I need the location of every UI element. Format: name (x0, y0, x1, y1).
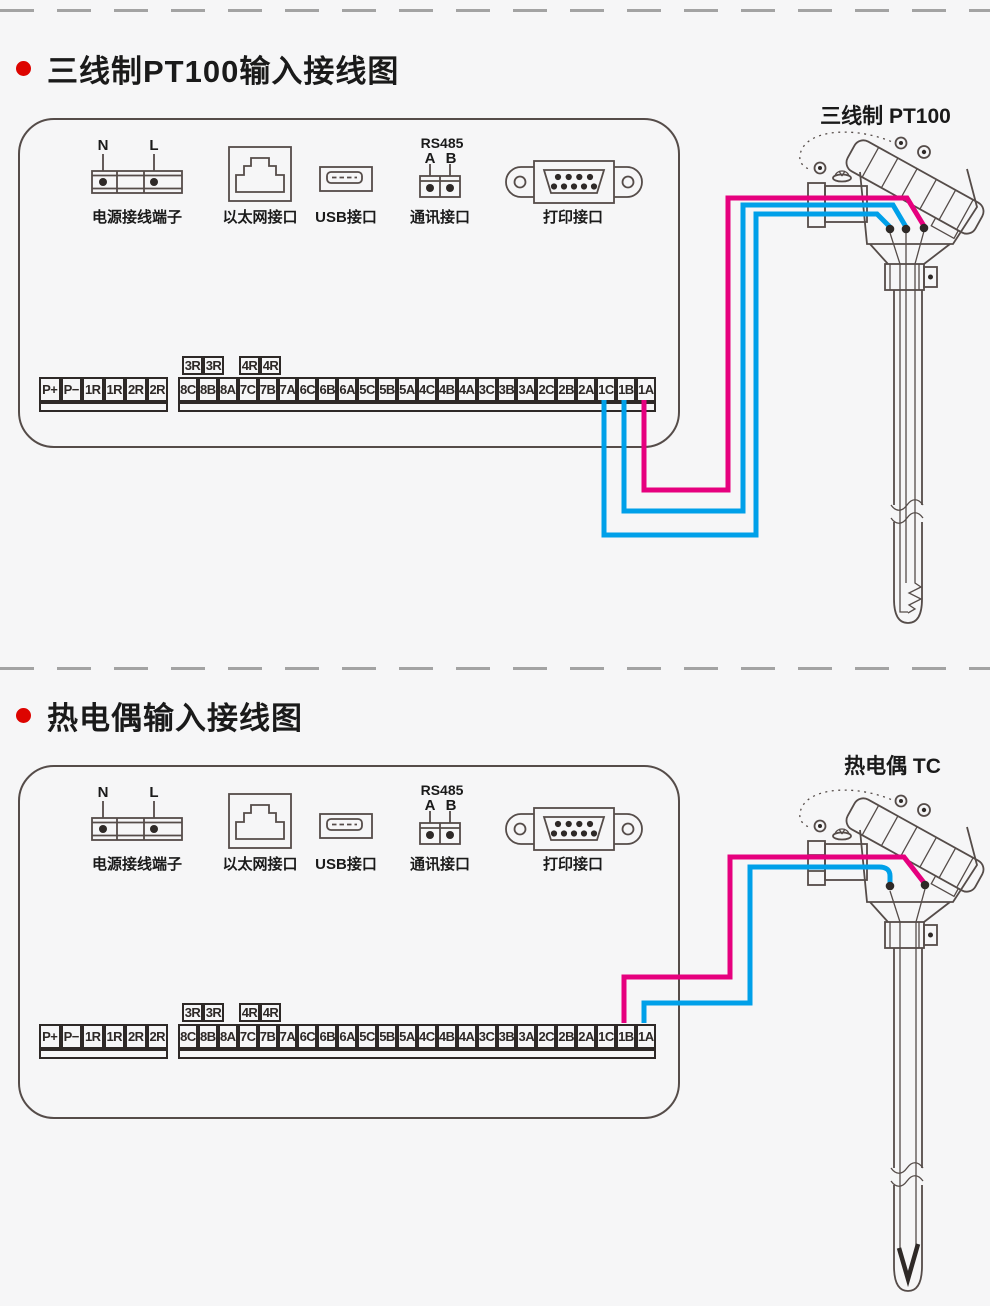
terminal-8c: 8C (178, 377, 198, 402)
terminal-1c: 1C (596, 1024, 616, 1049)
terminal-4r: 4R (239, 1003, 260, 1022)
terminal-1r: 1R (82, 377, 104, 402)
terminal-5a: 5A (397, 1024, 417, 1049)
terminal-5c: 5C (357, 377, 377, 402)
terminal-6a: 6A (337, 377, 357, 402)
terminal-8b: 8B (198, 1024, 218, 1049)
section2-title-row: 热电偶输入接线图 (16, 693, 303, 738)
terminal-1c: 1C (596, 377, 616, 402)
terminal-2b: 2B (556, 1024, 576, 1049)
terminal-strip-base (178, 1049, 656, 1059)
terminal-2c: 2C (536, 377, 556, 402)
terminal-6b: 6B (317, 377, 337, 402)
terminal-7c: 7C (238, 1024, 258, 1049)
terminal-strip-base (39, 1049, 168, 1059)
terminal-7a: 7A (278, 1024, 298, 1049)
red-bullet-icon (16, 708, 31, 723)
terminal-3r: 3R (203, 356, 224, 375)
printer-port-label: 打印接口 (513, 206, 633, 224)
terminal-2r: 2R (147, 1024, 169, 1049)
terminal-4r: 4R (260, 356, 281, 375)
terminal-6a: 6A (337, 1024, 357, 1049)
terminal-2r: 2R (147, 377, 169, 402)
comm-port-label: 通讯接口 (380, 206, 500, 224)
tc-sensor-illustration (800, 790, 987, 1291)
printer-port-icon (504, 807, 644, 851)
terminal-5c: 5C (357, 1024, 377, 1049)
terminal-3c: 3C (477, 377, 497, 402)
middle-dashed-divider (0, 667, 990, 670)
relay-terminal-group: 4R4R (239, 1003, 281, 1022)
terminal-1r: 1R (104, 377, 126, 402)
terminal-4a: 4A (457, 377, 477, 402)
printer-port-label: 打印接口 (513, 853, 633, 871)
terminal-strip-right: 8C8B8A7C7B7A6C6B6A5C5B5A4C4B4A3C3B3A2C2B… (178, 1024, 656, 1049)
terminal-4r: 4R (260, 1003, 281, 1022)
terminal-strip-left: P+P−1R1R2R2R (39, 1024, 168, 1049)
usb-port-icon (319, 813, 373, 839)
comm-port-icon (419, 164, 461, 198)
top-dashed-divider (0, 9, 990, 12)
recorder-rear-panel-tc: N L 电源接线端子 以太网接口 USB接口 RS485 A B 通讯接口 打印… (18, 765, 680, 1119)
wire-cyan-1a (644, 867, 890, 1023)
terminal-3a: 3A (516, 377, 536, 402)
power-terminal-icon (91, 154, 183, 194)
pin-label-l: L (144, 137, 164, 154)
terminal-1b: 1B (616, 1024, 636, 1049)
terminal-4c: 4C (417, 1024, 437, 1049)
terminal-3r: 3R (182, 1003, 203, 1022)
comm-port-label: 通讯接口 (380, 853, 500, 871)
terminal-1r: 1R (82, 1024, 104, 1049)
terminal-4a: 4A (457, 1024, 477, 1049)
terminal-p−: P− (61, 377, 83, 402)
terminal-3a: 3A (516, 1024, 536, 1049)
terminal-3b: 3B (497, 377, 517, 402)
pt100-sensor-label: 三线制 PT100 (793, 100, 978, 130)
terminal-5a: 5A (397, 377, 417, 402)
power-terminal-icon (91, 801, 183, 841)
relay-terminal-group: 3R3R (182, 356, 224, 375)
section1-title-row: 三线制PT100输入接线图 (16, 46, 399, 91)
terminal-2a: 2A (576, 377, 596, 402)
terminal-strip-right: 8C8B8A7C7B7A6C6B6A5C5B5A4C4B4A3C3B3A2C2B… (178, 377, 656, 402)
terminal-3c: 3C (477, 1024, 497, 1049)
terminal-3r: 3R (203, 1003, 224, 1022)
terminal-4b: 4B (437, 1024, 457, 1049)
terminal-p+: P+ (39, 377, 61, 402)
terminal-1a: 1A (636, 1024, 656, 1049)
tc-sensor-label: 热电偶 TC (800, 750, 985, 780)
power-terminal-label: 电源接线端子 (77, 206, 197, 224)
terminal-8c: 8C (178, 1024, 198, 1049)
pt100-sensor-illustration (800, 132, 987, 623)
terminal-p+: P+ (39, 1024, 61, 1049)
terminal-strip-base (178, 402, 656, 412)
relay-terminal-group: 3R3R (182, 1003, 224, 1022)
pin-label-n: N (93, 784, 113, 801)
terminal-7a: 7A (278, 377, 298, 402)
terminal-3b: 3B (497, 1024, 517, 1049)
terminal-2r: 2R (125, 1024, 147, 1049)
terminal-8b: 8B (198, 377, 218, 402)
terminal-5b: 5B (377, 377, 397, 402)
printer-port-icon (504, 160, 644, 204)
recorder-rear-panel-pt100: N L 电源接线端子 以太网接口 USB接口 RS485 A B 通讯接口 打印… (18, 118, 680, 448)
power-terminal-label: 电源接线端子 (77, 853, 197, 871)
rs485-label: RS485 (407, 135, 477, 151)
wiring-diagram-page: 三线制PT100输入接线图 热电偶输入接线图 (0, 0, 990, 1306)
terminal-7c: 7C (238, 377, 258, 402)
terminal-7b: 7B (258, 377, 278, 402)
terminal-1r: 1R (104, 1024, 126, 1049)
terminal-5b: 5B (377, 1024, 397, 1049)
terminal-2c: 2C (536, 1024, 556, 1049)
relay-terminal-row: 3R3R4R4R (182, 1003, 281, 1022)
terminal-strip-left: P+P−1R1R2R2R (39, 377, 168, 402)
wire-magenta-1a (644, 198, 924, 490)
terminal-8a: 8A (218, 1024, 238, 1049)
ethernet-port-icon (228, 793, 292, 849)
terminal-1b: 1B (616, 377, 636, 402)
terminal-2r: 2R (125, 377, 147, 402)
rs485-label: RS485 (407, 782, 477, 798)
terminal-2b: 2B (556, 377, 576, 402)
section2-title: 热电偶输入接线图 (47, 693, 303, 738)
comm-port-icon (419, 811, 461, 845)
terminal-6b: 6B (317, 1024, 337, 1049)
pin-label-n: N (93, 137, 113, 154)
relay-terminal-row: 3R3R4R4R (182, 356, 281, 375)
terminal-7b: 7B (258, 1024, 278, 1049)
ethernet-port-icon (228, 146, 292, 202)
terminal-4r: 4R (239, 356, 260, 375)
terminal-4b: 4B (437, 377, 457, 402)
terminal-2a: 2A (576, 1024, 596, 1049)
pin-label-l: L (144, 784, 164, 801)
terminal-p−: P− (61, 1024, 83, 1049)
terminal-8a: 8A (218, 377, 238, 402)
red-bullet-icon (16, 61, 31, 76)
section1-title: 三线制PT100输入接线图 (47, 46, 399, 91)
terminal-strip-base (39, 402, 168, 412)
terminal-3r: 3R (182, 356, 203, 375)
terminal-6c: 6C (297, 377, 317, 402)
relay-terminal-group: 4R4R (239, 356, 281, 375)
terminal-4c: 4C (417, 377, 437, 402)
terminal-1a: 1A (636, 377, 656, 402)
terminal-6c: 6C (297, 1024, 317, 1049)
usb-port-icon (319, 166, 373, 192)
